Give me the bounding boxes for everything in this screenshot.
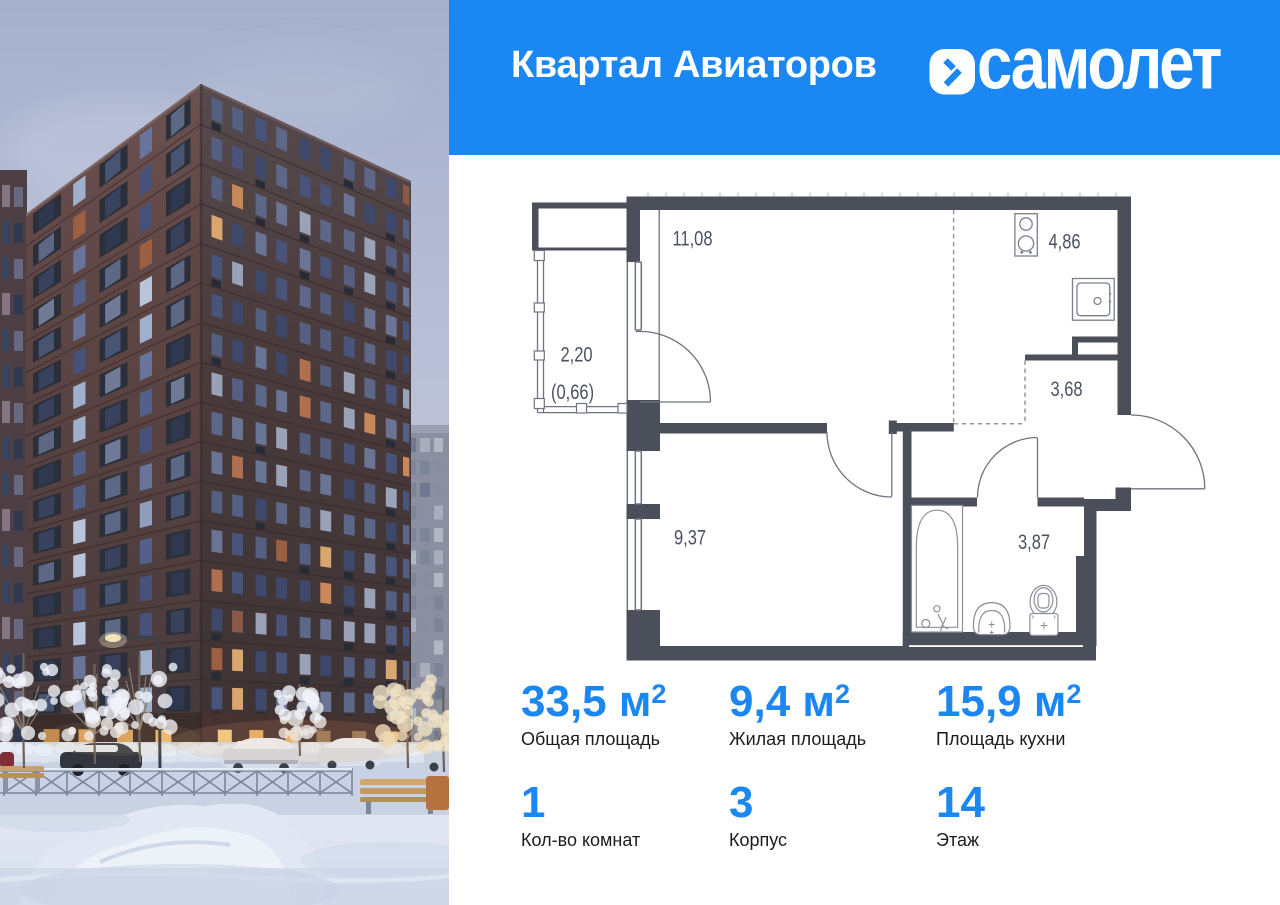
svg-text:9,37: 9,37	[674, 526, 706, 549]
svg-text:3,87: 3,87	[1018, 530, 1050, 553]
svg-text:4,86: 4,86	[1049, 230, 1081, 253]
svg-text:11,08: 11,08	[673, 227, 713, 250]
svg-text:(0,66): (0,66)	[551, 380, 594, 403]
svg-text:2,20: 2,20	[561, 343, 593, 366]
svg-text:3,68: 3,68	[1051, 377, 1083, 400]
